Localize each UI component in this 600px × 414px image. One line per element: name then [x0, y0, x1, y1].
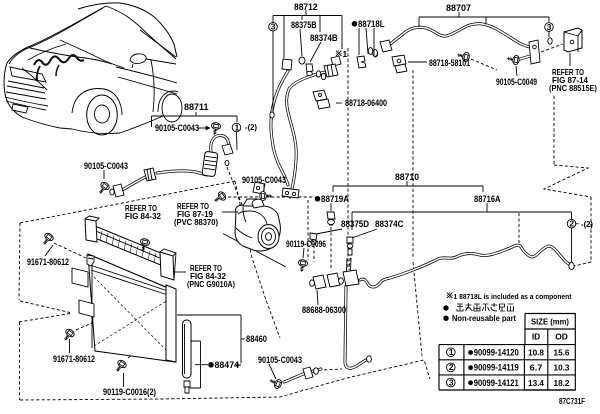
- svg-text:10.8: 10.8: [528, 348, 544, 358]
- svg-text:3: 3: [271, 22, 276, 32]
- svg-text:3: 3: [547, 22, 552, 32]
- svg-text:1: 1: [235, 122, 240, 132]
- svg-text:88375B: 88375B: [291, 20, 317, 30]
- svg-text:1: 1: [449, 347, 454, 357]
- svg-text:90099-14121: 90099-14121: [474, 378, 519, 388]
- svg-text:88688-06300: 88688-06300: [302, 305, 346, 315]
- svg-text:6.7: 6.7: [530, 363, 543, 373]
- svg-text:88719A: 88719A: [321, 194, 349, 204]
- svg-text:18.2: 18.2: [554, 378, 570, 388]
- svg-text:91671-80612: 91671-80612: [53, 354, 95, 364]
- svg-text:88712: 88712: [294, 2, 318, 12]
- svg-text:90119-C0016(2): 90119-C0016(2): [103, 387, 156, 397]
- svg-text:88711: 88711: [184, 102, 209, 112]
- svg-text:88707: 88707: [446, 3, 471, 13]
- svg-text:2: 2: [569, 219, 574, 229]
- svg-text:1: 1: [343, 49, 348, 59]
- svg-text:(PNC 88515E): (PNC 88515E): [549, 83, 597, 93]
- svg-text:-(2): -(2): [581, 219, 593, 229]
- svg-text:88375D: 88375D: [341, 219, 369, 229]
- svg-text:88718-06400: 88718-06400: [345, 98, 387, 108]
- svg-text:88474: 88474: [215, 360, 240, 370]
- svg-text:13.4: 13.4: [528, 378, 544, 388]
- svg-text:10.3: 10.3: [554, 363, 570, 373]
- svg-text:OD: OD: [555, 332, 568, 342]
- svg-text:2: 2: [449, 362, 454, 372]
- svg-text:88710: 88710: [395, 172, 419, 182]
- svg-text:88374B: 88374B: [310, 33, 338, 43]
- svg-text:90105-C0043: 90105-C0043: [155, 123, 199, 133]
- svg-text:(PNC G9010A): (PNC G9010A): [187, 279, 235, 289]
- svg-text:1 88718L is included as a com: 1 88718L is included as a component: [454, 292, 572, 301]
- svg-text:90099-14120: 90099-14120: [474, 348, 519, 358]
- svg-text:88374C: 88374C: [375, 219, 404, 229]
- svg-text:Non-reusable part: Non-reusable part: [452, 313, 516, 323]
- svg-text:87C731F: 87C731F: [559, 396, 585, 406]
- svg-text:88716A: 88716A: [474, 194, 501, 204]
- svg-text:90119-C0096: 90119-C0096: [286, 239, 326, 249]
- svg-text:90105-C0043: 90105-C0043: [242, 175, 286, 185]
- svg-text:FIG 84-32: FIG 84-32: [125, 211, 161, 221]
- svg-text:88460: 88460: [246, 334, 267, 344]
- svg-text:90105-C0043: 90105-C0043: [84, 161, 128, 171]
- svg-text:-(2): -(2): [245, 122, 257, 132]
- svg-text:88718-58101: 88718-58101: [429, 58, 470, 68]
- svg-text:SIZE (mm): SIZE (mm): [531, 317, 569, 327]
- svg-text:ID: ID: [532, 332, 540, 342]
- svg-text:(PVC 88370): (PVC 88370): [174, 217, 218, 227]
- svg-text:90105-C0043: 90105-C0043: [258, 355, 302, 365]
- svg-text:88718L: 88718L: [358, 19, 385, 29]
- svg-text:90099-14119: 90099-14119: [474, 363, 519, 373]
- svg-text:90105-C0049: 90105-C0049: [496, 77, 537, 87]
- svg-text:3: 3: [449, 377, 454, 387]
- svg-text:15.6: 15.6: [554, 348, 570, 358]
- svg-text:91671-80612: 91671-80612: [27, 257, 69, 267]
